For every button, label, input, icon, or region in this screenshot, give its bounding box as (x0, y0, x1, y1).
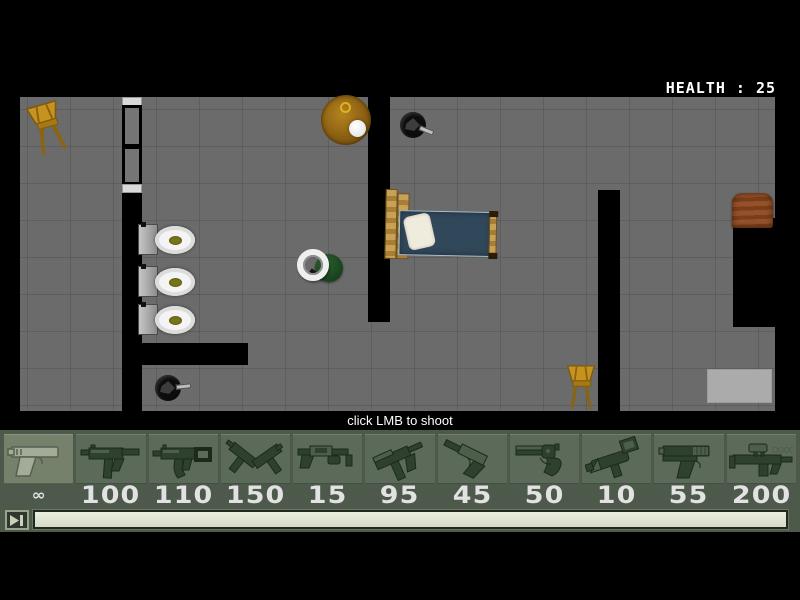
launcher-icon (585, 436, 649, 482)
toilet-water (169, 278, 182, 287)
hint-message: click LMB to shoot (0, 411, 800, 430)
chair-icon (24, 99, 73, 159)
chair-icon (563, 365, 599, 411)
table-lamp (349, 120, 366, 137)
toilet-1 (138, 223, 196, 257)
ammo-count-shotgun: 15 (289, 484, 367, 506)
crosshair-cursor (297, 249, 329, 281)
weapon-slot-uzi[interactable] (76, 434, 145, 484)
weapon-slot-silenced-pistol[interactable] (438, 434, 507, 484)
ammo-count-scoped-rifle: 200 (723, 484, 800, 506)
pistol-icon (7, 436, 71, 482)
wall-right-column (733, 218, 775, 327)
floor-mat (707, 369, 772, 403)
dual-uzis-icon (223, 436, 287, 482)
health-value: 25 (756, 79, 776, 97)
tec9-icon (368, 436, 432, 482)
weapon-slot-scoped-rifle[interactable] (727, 434, 796, 484)
toilet-water (169, 236, 182, 245)
window-pane (122, 105, 142, 147)
weapon-slot-dual-uzis[interactable] (221, 434, 290, 484)
health-display: HEALTH :25 (666, 79, 776, 97)
weapon-slot-shotgun[interactable] (293, 434, 362, 484)
ammo-row: ∞100110150159545501055200 (0, 484, 800, 506)
progress-track[interactable] (33, 510, 788, 529)
chair-bottom-right (563, 365, 599, 417)
table-ring-item (340, 102, 351, 113)
weapon-slot-combat-pistol[interactable] (654, 434, 723, 484)
crate (732, 193, 773, 228)
toilet-2 (138, 265, 196, 299)
combat-pistol-icon (657, 436, 721, 482)
weapon-slot-mp5[interactable] (149, 434, 218, 484)
enemy-bottom-left (155, 375, 181, 401)
ammo-count-revolver: 50 (506, 484, 584, 506)
enemy-gun (176, 383, 191, 390)
chair-top-left (24, 99, 73, 159)
health-label: HEALTH : (666, 79, 746, 97)
ammo-count-uzi: 100 (72, 484, 150, 506)
game-viewport: HEALTH :25 (0, 0, 800, 600)
mp5-icon (151, 436, 215, 482)
weapon-slot-pistol[interactable] (4, 434, 73, 484)
revolver-icon (512, 436, 576, 482)
weapon-slot-revolver[interactable] (510, 434, 579, 484)
ammo-count-launcher: 10 (578, 484, 656, 506)
weapon-slot-launcher[interactable] (582, 434, 651, 484)
silenced-pistol-icon (440, 436, 504, 482)
ammo-count-tec9: 95 (361, 484, 439, 506)
toilet-water (169, 316, 182, 325)
round-table (321, 95, 371, 145)
wall-lower-left-horizontal (142, 343, 248, 365)
window-pane (122, 146, 142, 185)
progress-fill (35, 512, 786, 527)
wall-center-right-vertical (598, 190, 620, 412)
ammo-count-dual-uzis: 150 (217, 484, 295, 506)
toilet-3 (138, 303, 196, 337)
weapon-slots (0, 430, 800, 484)
shotgun-icon (296, 436, 360, 482)
ammo-count-silenced-pistol: 45 (433, 484, 511, 506)
timeline-scrubber (0, 508, 800, 534)
uzi-icon (79, 436, 143, 482)
bed-footboard (488, 212, 497, 258)
scoped-rifle-icon (729, 436, 793, 482)
ammo-count-pistol: ∞ (0, 484, 77, 506)
weapon-bar: ∞100110150159545501055200 (0, 430, 800, 532)
play-step-button[interactable] (5, 510, 29, 530)
weapon-slot-tec9[interactable] (365, 434, 434, 484)
bed (384, 189, 499, 263)
window-sill-bottom (122, 184, 142, 193)
play-step-icon (10, 515, 24, 526)
enemy-top (400, 112, 426, 138)
window-wall (122, 97, 142, 193)
ammo-count-mp5: 110 (144, 484, 222, 506)
ammo-count-combat-pistol: 55 (650, 484, 728, 506)
game-map[interactable] (20, 97, 775, 412)
